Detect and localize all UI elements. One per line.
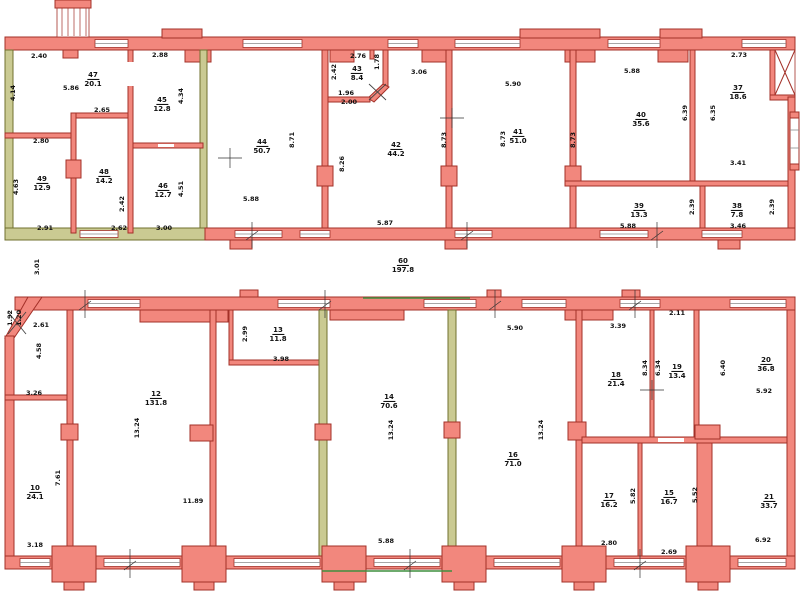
room-area: 18.6 [729,94,746,101]
dimension-label: 6.92 [755,536,771,544]
dimension-label: 5.88 [378,537,394,545]
dimension-label: 13.24 [537,420,545,441]
dimension-label: 3.18 [27,541,43,549]
dimension-label: 4.58 [35,343,43,359]
dimension-label: 2.42 [118,196,126,212]
room-area: 12.8 [153,106,170,113]
room-area: 21.4 [607,381,624,388]
dimension-label: 3.39 [610,322,626,330]
room-area: 44.2 [387,151,404,158]
room-label-21: 2133.7 [760,486,777,510]
dimension-label: 1.96 [338,89,354,97]
room-label-37: 3718.6 [729,77,746,101]
room-label-43: 438.4 [351,58,363,82]
dimension-label: 5.88 [624,67,640,75]
dimension-label: 8.73 [569,132,577,148]
dimension-label: 8.26 [338,156,346,172]
dimension-label: 2.99 [241,326,249,342]
floor-plan-page: 4720.14512.84912.94814.24612.74450.7438.… [0,0,800,600]
dimension-label: 8.73 [440,132,448,148]
dimension-label: 2.62 [111,224,127,232]
dimension-label: 2.80 [601,539,617,547]
room-label-12: 12131.8 [145,383,167,407]
dimension-label: 3.01 [33,259,41,275]
dimension-label: 3.00 [156,224,172,232]
room-label-45: 4512.8 [153,89,170,113]
dimension-label: 8.73 [499,131,507,147]
dimension-label: 6.34 [654,360,662,376]
room-area: 13.3 [630,212,647,219]
dimension-label: 2.39 [768,199,776,215]
dimension-label: 2.11 [669,309,685,317]
room-label-17: 1716.2 [600,485,617,509]
dimension-label: 2.80 [33,137,49,145]
room-label-60: 60197.8 [392,250,414,274]
room-area: 16.2 [600,502,617,509]
room-area: 35.6 [632,121,649,128]
dimension-label: 1.92 [6,310,14,326]
dimension-label: 2.00 [341,98,357,106]
room-label-40: 4035.6 [632,104,649,128]
dimension-label: 1.20 [15,310,23,326]
dimension-label: 2.42 [330,64,338,80]
dimension-label: 6.35 [709,105,717,121]
dimension-label: 13.24 [387,420,395,441]
room-label-18: 1821.4 [607,364,624,388]
dimension-label: 5.90 [507,324,523,332]
dimension-label: 4.34 [177,88,185,104]
dimension-label: 3.41 [730,159,746,167]
dimension-label: 6.39 [681,105,689,121]
dimension-label: 2.61 [33,321,49,329]
room-label-15: 1516.7 [660,482,677,506]
room-label-44: 4450.7 [253,131,270,155]
room-label-16: 1671.0 [504,444,521,468]
dimension-label: 2.73 [731,51,747,59]
room-label-38: 387.8 [731,195,743,219]
room-label-10: 1024.1 [26,477,43,501]
room-label-39: 3913.3 [630,195,647,219]
dimension-label: 5.88 [620,222,636,230]
dimension-label: 2.88 [152,51,168,59]
dimension-label: 5.82 [629,488,637,504]
dimension-label: 8.34 [641,360,649,376]
room-label-41: 4151.0 [509,121,526,145]
room-label-49: 4912.9 [33,168,50,192]
dimension-label: 3.26 [26,389,42,397]
room-area: 33.7 [760,503,777,510]
room-area: 70.6 [380,403,397,410]
room-area: 36.8 [757,366,774,373]
dimension-label: 3.46 [730,222,746,230]
dimension-label: 2.69 [661,548,677,556]
room-area: 11.8 [269,336,286,343]
room-label-42: 4244.2 [387,134,404,158]
room-area: 7.8 [731,212,743,219]
dimension-label: 5.87 [377,219,393,227]
dimension-label: 8.71 [288,132,296,148]
room-area: 12.9 [33,185,50,192]
dimension-label: 13.24 [133,418,141,439]
dimension-label: 3.06 [411,68,427,76]
dimension-label: 4.51 [177,181,185,197]
dimension-label: 2.76 [350,52,366,60]
room-area: 16.7 [660,499,677,506]
room-label-20: 2036.8 [757,349,774,373]
room-area: 13.4 [668,373,685,380]
room-label-48: 4814.2 [95,161,112,185]
dimension-label: 5.90 [505,80,521,88]
room-area: 20.1 [84,81,101,88]
room-area: 71.0 [504,461,521,468]
dimension-label: 7.61 [54,470,62,486]
dimension-label: 5.52 [691,487,699,503]
dimension-label: 5.88 [243,195,259,203]
room-label-13: 1311.8 [269,319,286,343]
room-label-46: 4612.7 [154,175,171,199]
room-area: 131.8 [145,400,167,407]
room-area: 51.0 [509,138,526,145]
room-label-14: 1470.6 [380,386,397,410]
room-label-19: 1913.4 [668,356,685,380]
room-area: 8.4 [351,75,363,82]
dimension-label: 2.39 [688,199,696,215]
dimension-label: 4.63 [12,179,20,195]
dimension-label: 5.86 [63,84,79,92]
dimension-label: 4.14 [9,85,17,101]
dimension-label: 2.65 [94,106,110,114]
room-area: 12.7 [154,192,171,199]
room-label-47: 4720.1 [84,64,101,88]
dimension-label: 2.40 [31,52,47,60]
dimension-label: 11.89 [183,497,204,505]
dimension-label: 6.40 [719,360,727,376]
dimension-label: 5.92 [756,387,772,395]
dimension-label: 3.98 [273,355,289,363]
room-and-dimension-labels: 4720.14512.84912.94814.24612.74450.7438.… [0,0,800,600]
room-area: 197.8 [392,267,414,274]
room-area: 14.2 [95,178,112,185]
room-area: 24.1 [26,494,43,501]
room-area: 50.7 [253,148,270,155]
dimension-label: 1.78 [373,54,381,70]
dimension-label: 2.91 [37,224,53,232]
